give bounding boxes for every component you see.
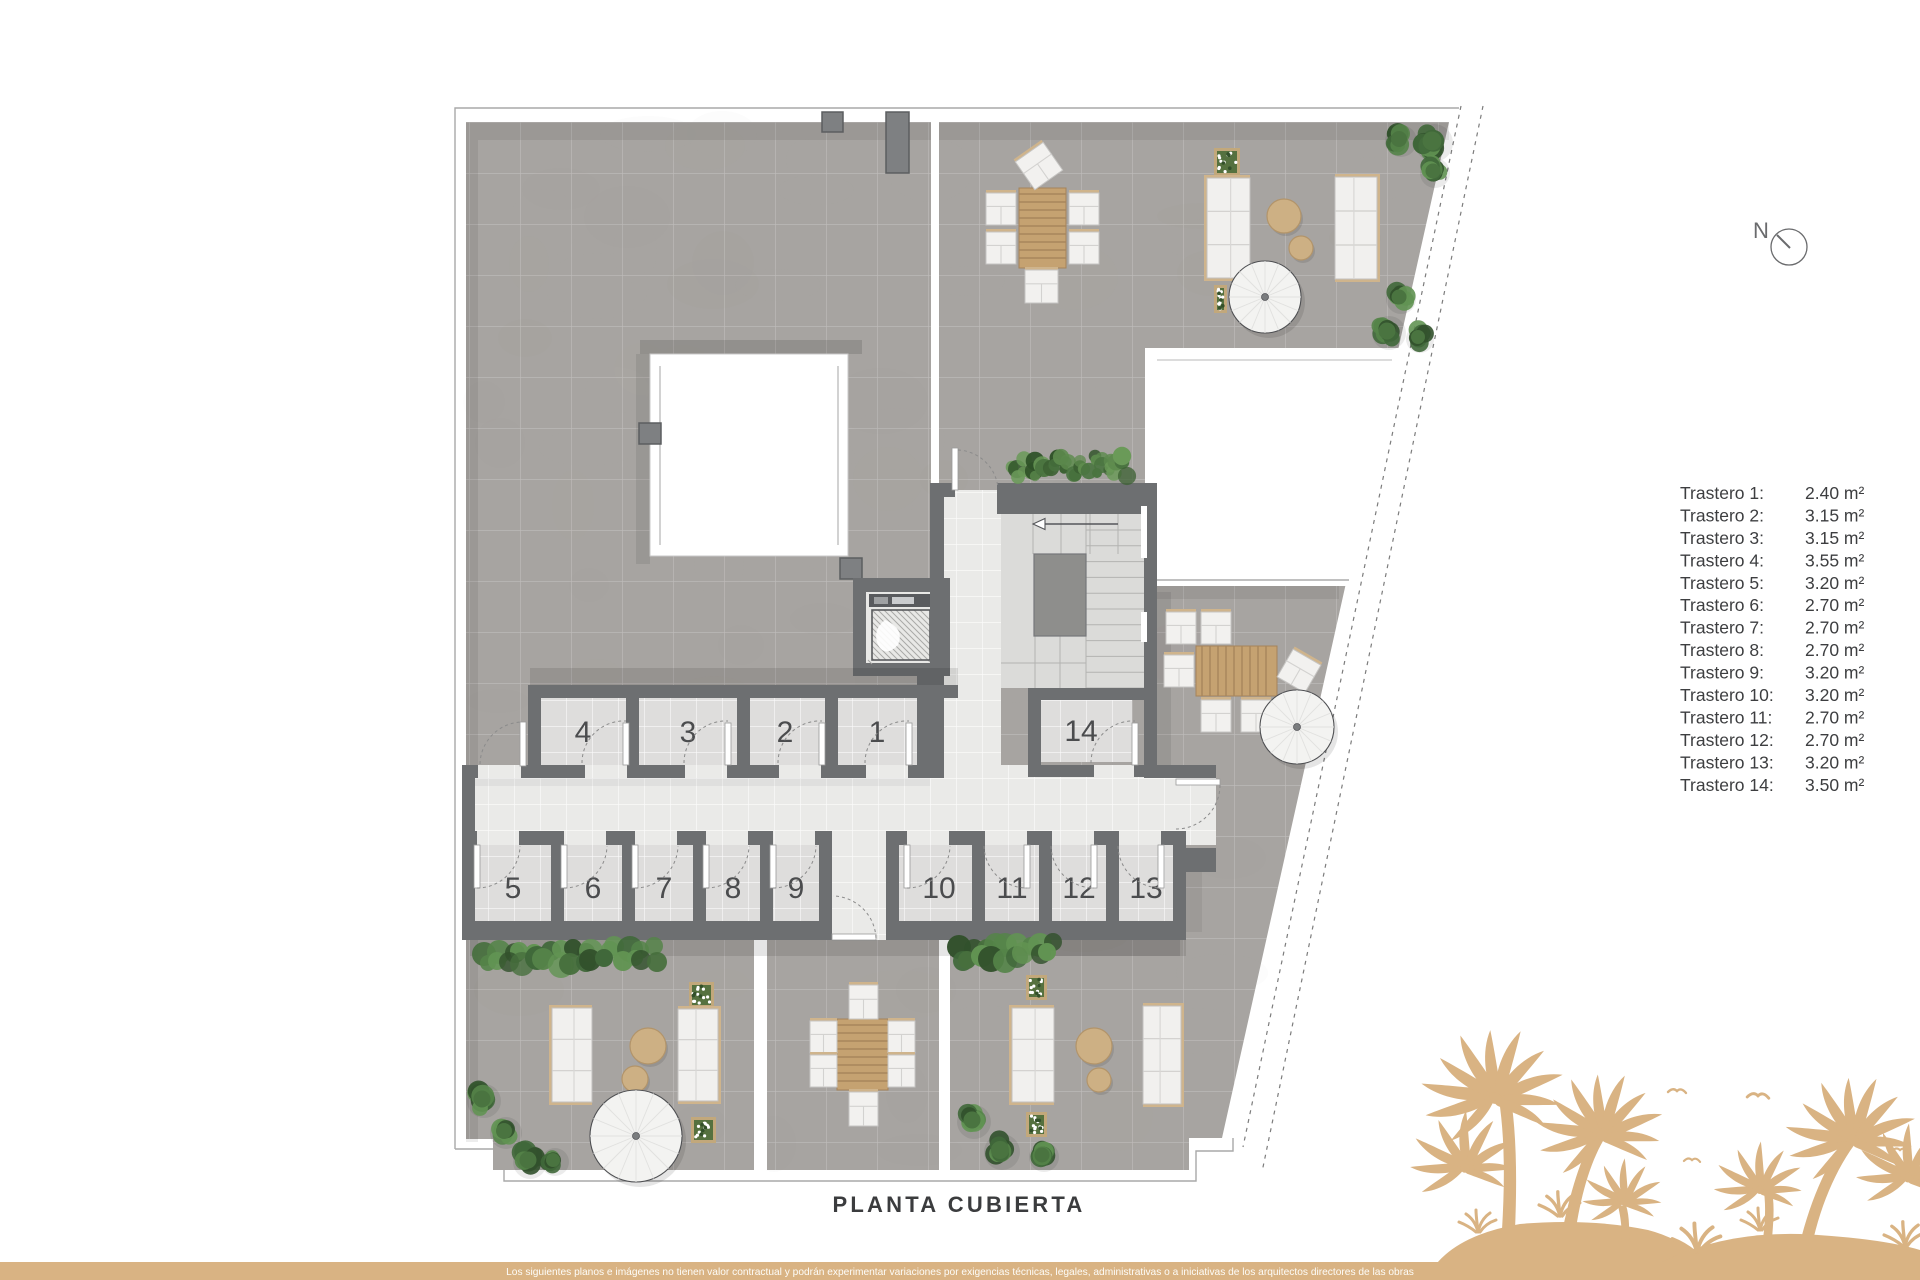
svg-text:2.70 m²: 2.70 m²: [1805, 730, 1864, 750]
svg-text:5: 5: [505, 872, 522, 905]
svg-text:3.50 m²: 3.50 m²: [1805, 775, 1864, 795]
svg-text:10: 10: [922, 872, 955, 905]
svg-text:Trastero 4:: Trastero 4:: [1680, 550, 1764, 570]
svg-text:2.70 m²: 2.70 m²: [1805, 708, 1864, 728]
svg-text:Trastero 2:: Trastero 2:: [1680, 506, 1764, 526]
svg-text:3.20 m²: 3.20 m²: [1805, 573, 1864, 593]
svg-text:3.20 m²: 3.20 m²: [1805, 685, 1864, 705]
svg-text:11: 11: [996, 872, 1027, 905]
svg-text:Trastero 9:: Trastero 9:: [1680, 663, 1764, 683]
svg-text:Trastero 7:: Trastero 7:: [1680, 618, 1764, 638]
svg-text:Trastero 8:: Trastero 8:: [1680, 640, 1764, 660]
svg-text:PLANTA CUBIERTA: PLANTA CUBIERTA: [833, 1192, 1086, 1217]
svg-text:2.40 m²: 2.40 m²: [1805, 483, 1864, 503]
svg-text:3.20 m²: 3.20 m²: [1805, 752, 1864, 772]
svg-text:Trastero 3:: Trastero 3:: [1680, 528, 1764, 548]
svg-text:3.15 m²: 3.15 m²: [1805, 528, 1864, 548]
svg-text:N: N: [1753, 218, 1769, 243]
svg-text:2: 2: [777, 716, 794, 749]
svg-text:Trastero 14:: Trastero 14:: [1680, 775, 1774, 795]
svg-text:4: 4: [575, 716, 592, 749]
svg-text:3.20 m²: 3.20 m²: [1805, 663, 1864, 683]
svg-text:2.70 m²: 2.70 m²: [1805, 595, 1864, 615]
svg-text:Trastero 11:: Trastero 11:: [1680, 708, 1772, 728]
svg-text:1: 1: [869, 716, 886, 749]
svg-text:Trastero 1:: Trastero 1:: [1680, 483, 1764, 503]
svg-text:Trastero 6:: Trastero 6:: [1680, 595, 1764, 615]
svg-text:Trastero 12:: Trastero 12:: [1680, 730, 1774, 750]
svg-text:14: 14: [1064, 715, 1097, 748]
svg-text:3.55 m²: 3.55 m²: [1805, 550, 1864, 570]
svg-text:2.70 m²: 2.70 m²: [1805, 640, 1864, 660]
svg-text:Los siguientes planos e imágen: Los siguientes planos e imágenes no tien…: [506, 1267, 1414, 1278]
svg-text:2.70 m²: 2.70 m²: [1805, 618, 1864, 638]
svg-text:Trastero 13:: Trastero 13:: [1680, 752, 1774, 772]
svg-text:3.15 m²: 3.15 m²: [1805, 506, 1864, 526]
svg-text:Trastero 5:: Trastero 5:: [1680, 573, 1764, 593]
svg-text:8: 8: [725, 872, 742, 905]
svg-text:Trastero 10:: Trastero 10:: [1680, 685, 1774, 705]
